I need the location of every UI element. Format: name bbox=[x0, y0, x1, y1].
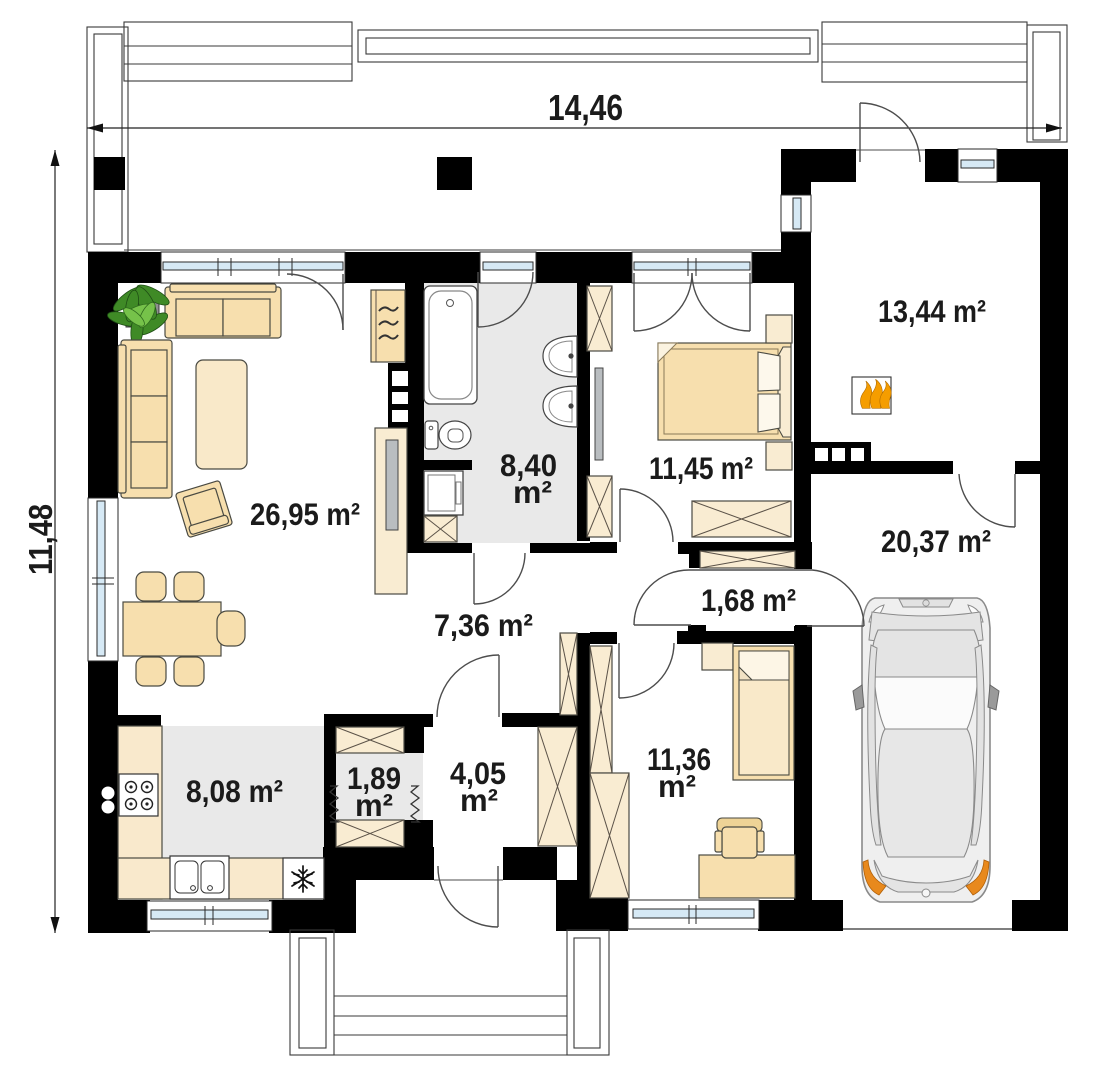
svg-text:m²: m² bbox=[460, 782, 498, 818]
svg-text:8,08 m²: 8,08 m² bbox=[186, 773, 283, 809]
svg-text:m²: m² bbox=[658, 768, 696, 804]
svg-text:13,44 m²: 13,44 m² bbox=[878, 293, 986, 329]
svg-text:m²: m² bbox=[355, 787, 393, 823]
svg-text:11,45 m²: 11,45 m² bbox=[649, 450, 753, 486]
svg-text:14,46: 14,46 bbox=[548, 87, 623, 128]
svg-text:11,48: 11,48 bbox=[22, 504, 59, 575]
svg-text:7,36 m²: 7,36 m² bbox=[434, 607, 533, 643]
svg-text:1,68 m²: 1,68 m² bbox=[701, 582, 796, 618]
svg-text:m²: m² bbox=[513, 474, 552, 510]
svg-text:26,95 m²: 26,95 m² bbox=[250, 496, 360, 532]
svg-text:20,37 m²: 20,37 m² bbox=[881, 523, 991, 559]
